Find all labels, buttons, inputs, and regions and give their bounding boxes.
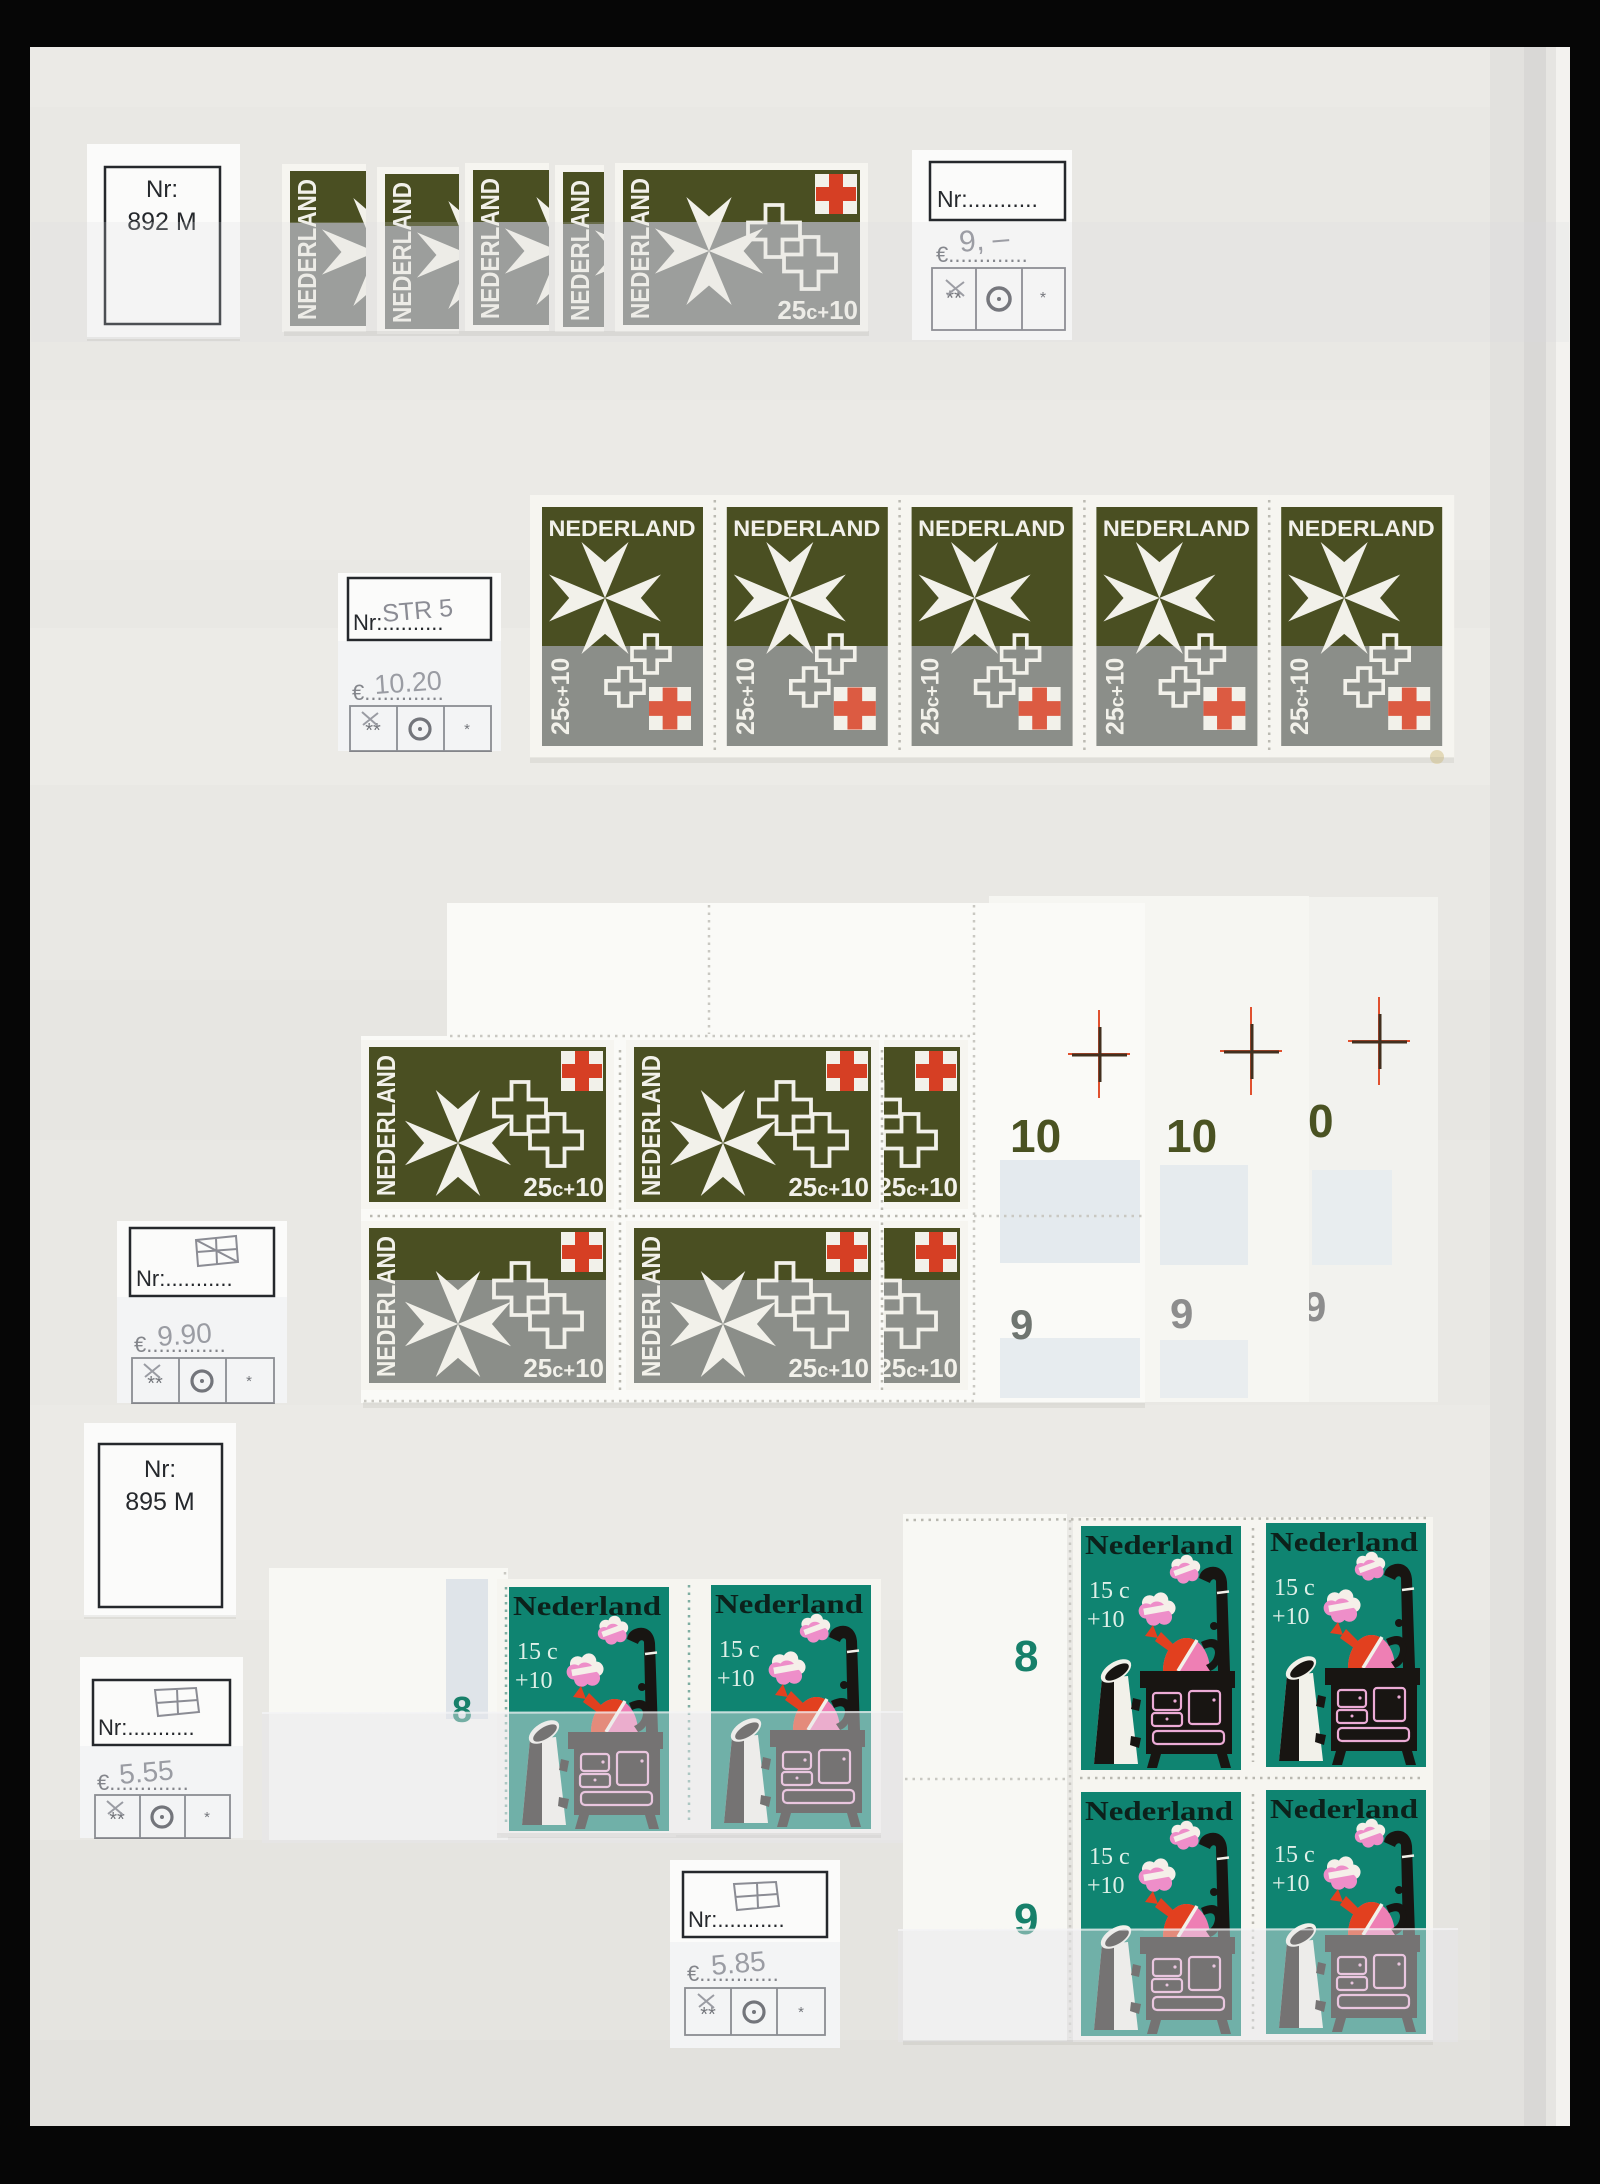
svg-text:9: 9 xyxy=(1010,1301,1033,1348)
svg-text:0: 0 xyxy=(1308,1095,1334,1147)
svg-text:9: 9 xyxy=(1170,1290,1193,1337)
svg-text:Nr:: Nr: xyxy=(144,1456,176,1483)
svg-text:Nr:...........: Nr:........... xyxy=(937,186,1038,212)
svg-text:8: 8 xyxy=(1014,1632,1038,1681)
svg-text:Nr:...........: Nr:........... xyxy=(136,1266,233,1291)
svg-text:895 M: 895 M xyxy=(125,1488,194,1516)
svg-text:Nr:: Nr: xyxy=(146,176,178,203)
svg-text:Nr:...........: Nr:........... xyxy=(98,1715,195,1740)
svg-text:10: 10 xyxy=(1166,1110,1217,1162)
svg-text:10: 10 xyxy=(1010,1110,1061,1162)
